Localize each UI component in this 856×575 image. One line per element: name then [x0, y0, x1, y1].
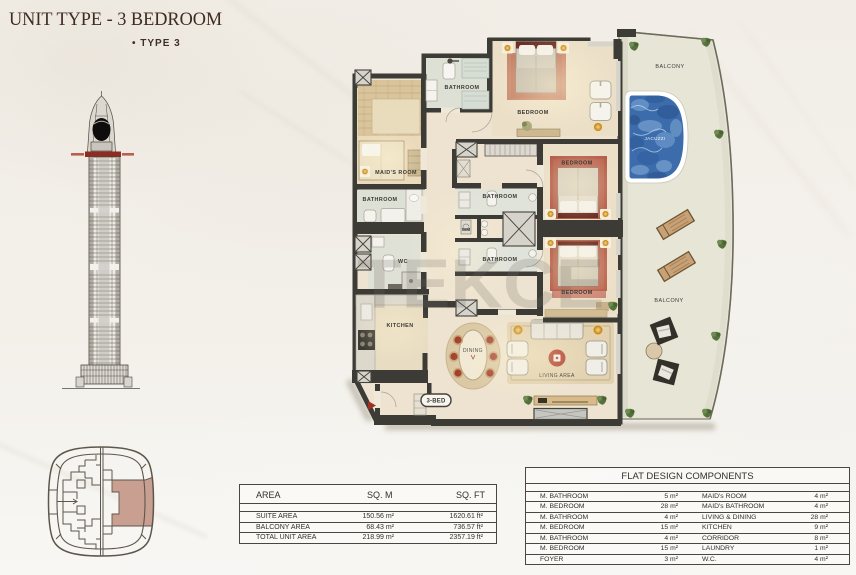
svg-text:BEDROOM: BEDROOM — [517, 110, 548, 116]
svg-text:3-BED: 3-BED — [426, 399, 445, 405]
svg-text:MAID'S ROOM: MAID'S ROOM — [375, 170, 417, 176]
svg-text:BATHROOM: BATHROOM — [483, 194, 518, 200]
svg-text:JACUZZI: JACUZZI — [645, 136, 666, 141]
svg-text:BALCONY: BALCONY — [654, 298, 683, 304]
svg-text:KITCHEN: KITCHEN — [386, 323, 413, 329]
svg-text:WM: WM — [462, 227, 471, 233]
svg-text:BATHROOM: BATHROOM — [363, 197, 398, 203]
svg-text:BALCONY: BALCONY — [655, 64, 684, 70]
svg-text:BEDROOM: BEDROOM — [561, 161, 592, 167]
svg-text:BATHROOM: BATHROOM — [445, 85, 480, 91]
